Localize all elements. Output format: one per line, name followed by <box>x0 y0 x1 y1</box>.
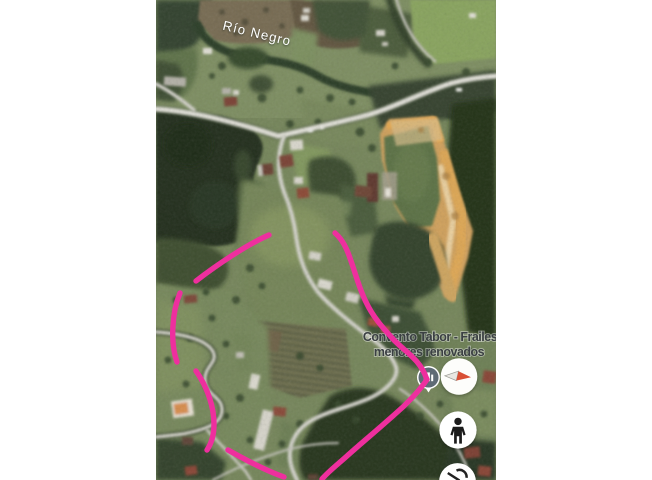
svg-text:Convento Tabor - Frailes: Convento Tabor - Frailes <box>363 330 496 344</box>
svg-text:menores renovados: menores renovados <box>374 345 485 359</box>
